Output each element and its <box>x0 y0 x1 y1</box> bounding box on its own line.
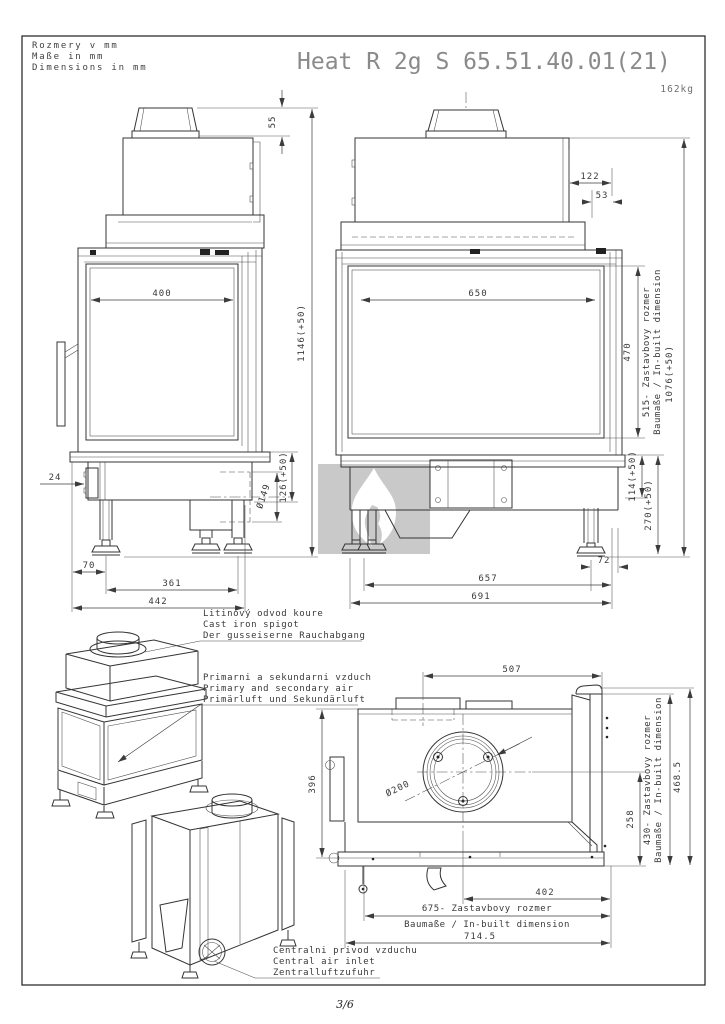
iso-view-rear <box>131 794 296 978</box>
dim-glass-height: 470 <box>623 342 633 361</box>
dim-inbuilt-width-2: Baumaße / In-built dimension <box>404 920 570 930</box>
technical-drawing: Rozmery v mm Maße in mm Dimensions in mm… <box>0 0 725 1024</box>
dim-rear-depth: 258 <box>626 809 636 828</box>
dim-inbuilt-height-1: 515- Zastavbovy rozmer <box>642 287 652 417</box>
dim-base-height-2: 270(+50) <box>644 479 654 530</box>
dim-feet-span-front: 657 <box>478 574 497 584</box>
side-view: 55 1146(+50) 400 126(+50) Ø149 24 70 361… <box>40 90 318 612</box>
annotation-central-air: Centralni privod vzduchu Central air inl… <box>214 946 417 978</box>
iso-view-front <box>52 632 208 818</box>
dim-glass-width-side: 400 <box>152 289 171 299</box>
dim-overall-width-side: 442 <box>148 597 167 607</box>
dim-overall-width-plan: 714.5 <box>464 932 496 942</box>
annotation-spigot-de: Der gusseiserne Rauchabgang <box>203 631 366 641</box>
drawing-title: Heat R 2g S 65.51.40.01(21) <box>297 49 671 75</box>
dim-inbuilt-width-1: 675- Zastavbovy rozmer <box>422 904 552 914</box>
dim-inbuilt-height-2: Baumaße / In-built dimension <box>653 269 663 435</box>
units-note: Rozmery v mm Maße in mm Dimensions in mm <box>32 41 148 73</box>
dim-top-offset: 122 <box>580 172 599 182</box>
dim-foot-offset-side: 70 <box>83 561 96 571</box>
dim-collar-height: 55 <box>268 116 278 129</box>
annotation-central-de: Zentralluftzufuhr <box>273 968 375 978</box>
units-line-de: Maße in mm <box>32 52 104 62</box>
dim-glass-width-front: 650 <box>468 289 487 299</box>
annotation-spigot-cz: Litinový odvod koure <box>203 609 323 619</box>
door-handle <box>57 342 78 426</box>
dim-flue-diameter-plan: Ø200 <box>384 778 412 799</box>
dim-inbuilt-depth-1: 430- Zastavbovy rozmer <box>643 715 653 845</box>
dim-foot-offset-front: 72 <box>598 556 611 566</box>
dim-overall-width-front: 691 <box>471 592 490 602</box>
dim-base-height: 126(+50) <box>279 451 289 502</box>
units-line-cz: Rozmery v mm <box>32 41 119 51</box>
dim-handle-offset: 24 <box>49 473 62 483</box>
dim-feet-span-side: 361 <box>162 579 181 589</box>
drawing-page: Rozmery v mm Maße in mm Dimensions in mm… <box>0 0 725 1024</box>
annotation-air-cz: Primarni a sekundarni vzduch <box>203 673 372 683</box>
dim-overall-depth: 468.5 <box>673 761 683 793</box>
annotation-air-de: Primärluft und Sekundärluft <box>203 695 366 705</box>
dim-center-to-right: 402 <box>535 888 554 898</box>
annotation-central-cz: Centralni privod vzduchu <box>273 946 417 956</box>
dim-collar-offset-front: 53 <box>596 191 609 201</box>
dim-depth: 396 <box>308 774 318 793</box>
dim-inbuilt-depth-2: Baumaße / In-built dimension <box>654 697 664 863</box>
page-number: 3/6 <box>336 998 354 1011</box>
annotation-air-en: Primary and secondary air <box>203 684 353 694</box>
dim-total-height: 1146(+50) <box>297 304 307 362</box>
dim-overall-height: 1076(+50) <box>665 345 675 403</box>
units-line-en: Dimensions in mm <box>32 63 148 73</box>
dim-collar-offset-plan: 507 <box>502 665 521 675</box>
annotation-spigot-en: Cast iron spigot <box>203 620 299 630</box>
weight-label: 162kg <box>660 84 694 95</box>
annotation-central-en: Central air inlet <box>273 957 375 967</box>
annotation-spigot: Litinový odvod koure Cast iron spigot De… <box>145 609 366 652</box>
plan-view: Ø200 507 396 258 430- Zastavbovy rozmer … <box>308 665 694 948</box>
dim-base-height-1: 114(+50) <box>628 450 638 501</box>
dim-flue-diameter-side: Ø149 <box>254 482 272 510</box>
